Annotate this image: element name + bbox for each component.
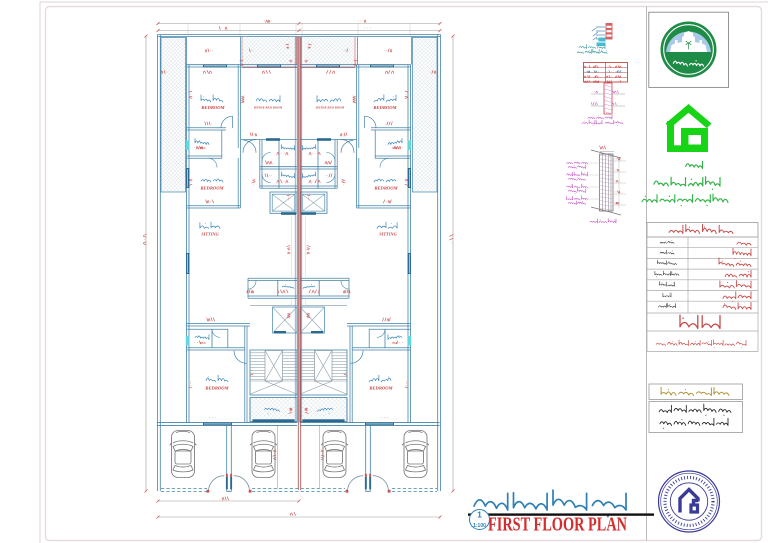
svg-text:FIRST FLOOR PLAN: FIRST FLOOR PLAN bbox=[488, 515, 627, 536]
svg-text:BEDROOM: BEDROOM bbox=[199, 186, 224, 191]
svg-text:W.C: W.C bbox=[392, 146, 399, 150]
svg-text:W.C: W.C bbox=[200, 146, 207, 150]
svg-text:W.C: W.C bbox=[200, 341, 207, 345]
svg-text:BEDROOM: BEDROOM bbox=[368, 386, 393, 391]
svg-text:1: 1 bbox=[477, 510, 482, 520]
svg-text:BEDROOM: BEDROOM bbox=[373, 186, 398, 191]
svg-text:MSTER BED ROOM: MSTER BED ROOM bbox=[315, 106, 345, 110]
svg-text:BEDROOM: BEDROOM bbox=[200, 105, 225, 110]
svg-text:1:100: 1:100 bbox=[473, 523, 486, 529]
svg-text:MSTER BED ROOM: MSTER BED ROOM bbox=[253, 106, 283, 110]
svg-text:SITTING: SITTING bbox=[201, 232, 219, 237]
svg-text:BEDROOM: BEDROOM bbox=[204, 386, 229, 391]
svg-text:SITTING: SITTING bbox=[379, 232, 397, 237]
svg-text:BEDROOM: BEDROOM bbox=[372, 105, 397, 110]
svg-text:W.C: W.C bbox=[392, 341, 399, 345]
